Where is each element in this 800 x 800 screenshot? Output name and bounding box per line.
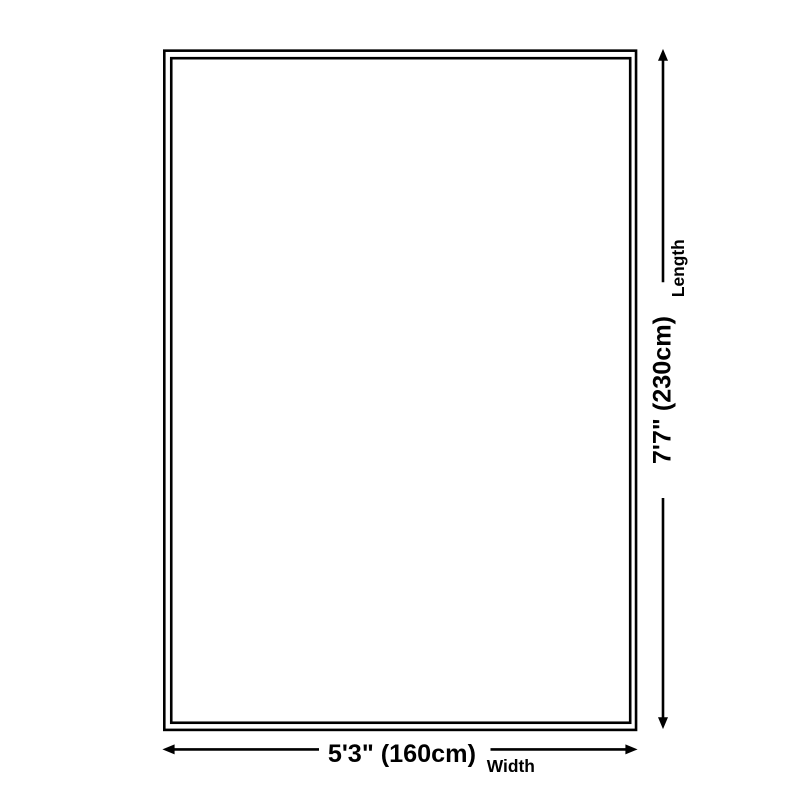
- svg-text:5'3" (160cm): 5'3" (160cm): [328, 740, 476, 768]
- svg-text:Length: Length: [668, 239, 688, 297]
- svg-text:7'7" (230cm): 7'7" (230cm): [649, 316, 677, 464]
- svg-text:Width: Width: [487, 756, 535, 776]
